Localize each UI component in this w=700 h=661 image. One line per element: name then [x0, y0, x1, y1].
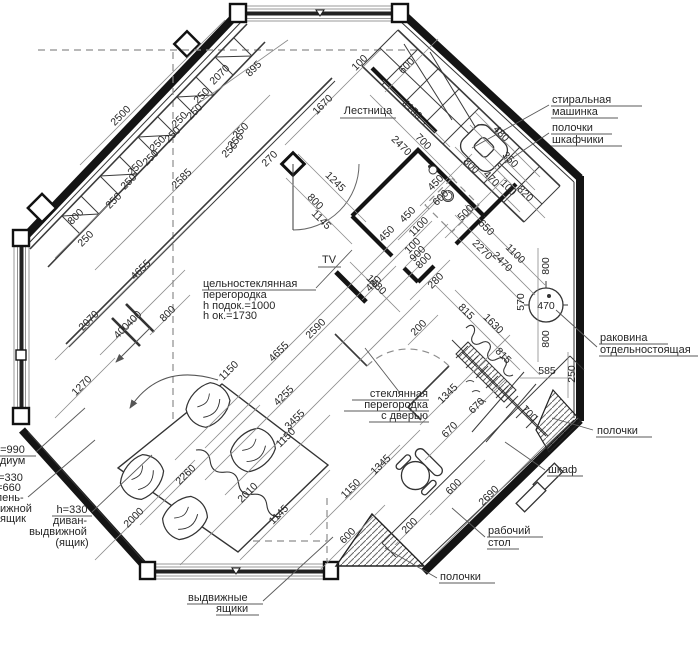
- desk-label: рабочий: [488, 525, 530, 537]
- sink-label: отдельностоящая: [600, 344, 691, 356]
- dim-label: 600: [396, 55, 417, 76]
- shelves-bottom-label: полочки: [440, 571, 481, 583]
- tv-label: TV: [322, 254, 337, 266]
- dim-label: 820: [515, 183, 536, 204]
- dim-label: 1345: [435, 381, 460, 406]
- dim-label: 250: [75, 228, 96, 249]
- dim-label: 2000: [121, 505, 146, 530]
- glass-partition: [66, 78, 335, 347]
- dim-label: 585: [538, 365, 556, 377]
- dim-label: 2070: [207, 62, 232, 87]
- shelves-cabinets-label: шкафчики: [552, 134, 604, 146]
- office-chair: [391, 444, 448, 501]
- tap-icon: [547, 294, 551, 298]
- dim-label: 800: [540, 330, 552, 348]
- floor-plan-drawing: Лестница TV стиральная машинка полочки ш…: [0, 0, 700, 661]
- dim-label: 815: [493, 345, 514, 366]
- desk-item: [516, 482, 546, 512]
- sofa-drawer-label: (ящик): [55, 537, 88, 549]
- dim-label: 470: [537, 300, 555, 312]
- window-marker-icon: [16, 350, 26, 360]
- dim-label: 250: [566, 365, 578, 383]
- glass-wall-label: h ок.=1730: [203, 310, 257, 322]
- dim-label: 1150: [339, 477, 364, 502]
- desk-label: стол: [488, 537, 511, 549]
- dim-label: 1345: [368, 452, 393, 477]
- dim-label: 4655: [266, 339, 291, 364]
- dim-label: 670: [466, 395, 487, 416]
- podium-label: подиум: [0, 455, 25, 467]
- sink-label: раковина: [600, 332, 648, 344]
- dim-label: 2470: [389, 133, 414, 158]
- dim-label: 1270: [69, 373, 94, 398]
- tv-wall: [336, 272, 366, 302]
- window-wall-left: [13, 230, 29, 424]
- window-wall-bottom: [140, 562, 338, 579]
- dim-label: 700: [519, 403, 540, 424]
- wardrobe-label: шкаф: [548, 464, 577, 476]
- shelves-right-label: полочки: [597, 425, 638, 437]
- dim-label: 250: [103, 190, 124, 211]
- dim-label: 800: [157, 303, 178, 324]
- washer-label: стиральная: [552, 94, 611, 106]
- dim-label: 4255: [271, 383, 296, 408]
- dim-label: 1150: [217, 359, 242, 384]
- drawers-label: ящики: [216, 603, 248, 615]
- dim-label: 1145: [309, 208, 334, 233]
- floor-plan-page: Лестница TV стиральная машинка полочки ш…: [0, 0, 700, 661]
- dim-label: 200: [399, 515, 420, 536]
- dim-label: 270: [259, 148, 280, 169]
- stairs-label: Лестница: [344, 105, 393, 117]
- dim-label: 815: [456, 301, 477, 322]
- dim-label: 1630: [481, 311, 506, 336]
- step-drawer-label: ящик: [0, 513, 26, 525]
- dim-label: 670: [439, 419, 460, 440]
- window-wall-top: [230, 4, 408, 22]
- glass-door-label: с дверью: [381, 410, 428, 422]
- dim-label: 600: [443, 476, 464, 497]
- dim-label: 800: [540, 257, 552, 275]
- dim-label: 570: [515, 293, 527, 311]
- washer-label: машинка: [552, 106, 599, 118]
- shelves-cabinets-label: полочки: [552, 122, 593, 134]
- dim-label: 2585: [169, 166, 194, 191]
- dim-label: 200: [408, 317, 429, 338]
